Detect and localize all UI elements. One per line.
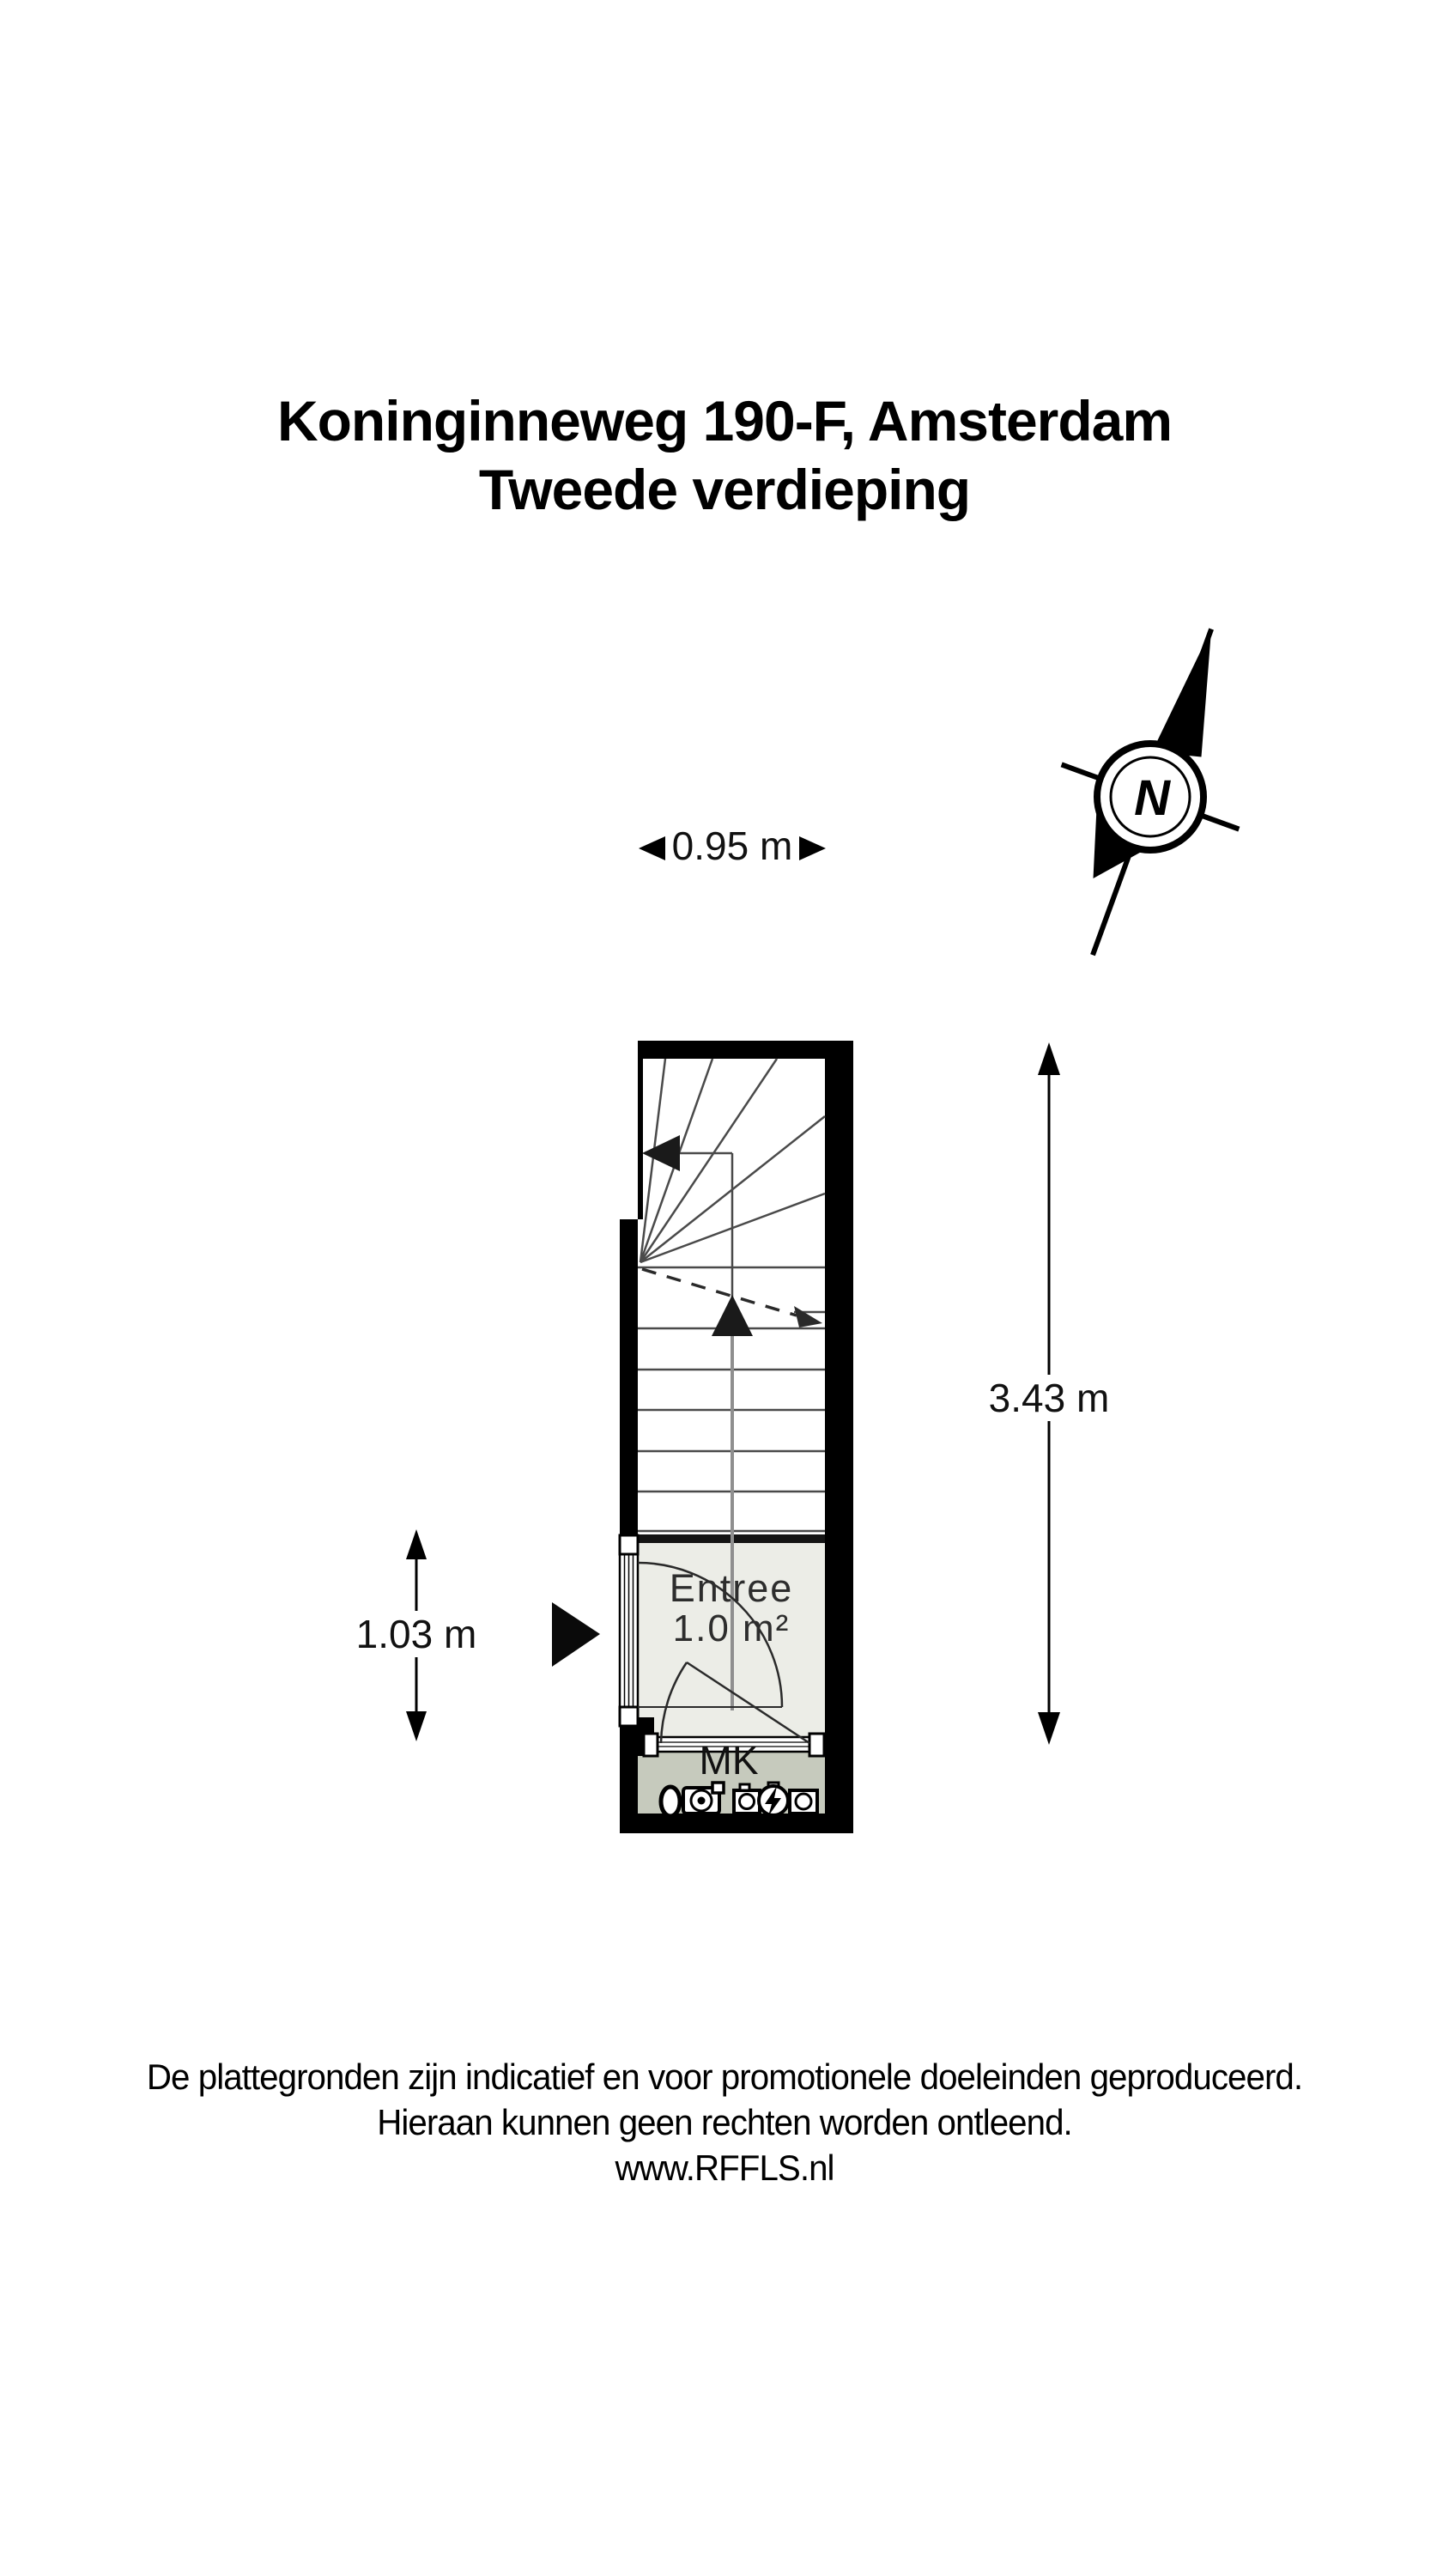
- dimension-height-left-label: 1.03 m: [330, 1611, 502, 1657]
- website-url: www.RFFLS.nl: [29, 2145, 1420, 2190]
- floorplan-page: { "title": { "line1": "Koninginneweg 190…: [0, 0, 1449, 2576]
- room-area-entree: 1.0 m²: [638, 1609, 825, 1649]
- meter-box-icon: [734, 1784, 760, 1814]
- room-label-mk: MK: [638, 1740, 820, 1781]
- disclaimer-footer: De plattegronden zijn indicatief en voor…: [29, 2054, 1420, 2190]
- disclaimer-line-2: Hieraan kunnen geen rechten worden ontle…: [29, 2099, 1420, 2145]
- light-point-icon: [683, 1783, 724, 1814]
- gas-meter-icon: [661, 1787, 680, 1816]
- dimension-height-right-label: 3.43 m: [963, 1375, 1135, 1421]
- water-meter-icon: [790, 1790, 817, 1814]
- left-arrow-icon: [642, 1135, 680, 1171]
- room-name-entree: Entree: [638, 1568, 825, 1609]
- dimension-width-label: 0.95 m: [646, 823, 818, 869]
- disclaimer-line-1: De plattegronden zijn indicatief en voor…: [29, 2054, 1420, 2099]
- entrance-arrow-icon: [552, 1602, 600, 1667]
